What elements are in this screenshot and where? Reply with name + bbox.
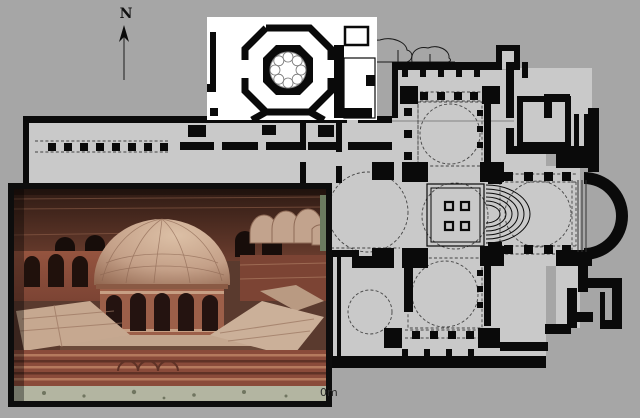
model-photo-image [14,189,326,401]
north-label: N [116,6,136,22]
scale-label: 0m [320,386,338,399]
north-arrow [119,25,129,80]
octagon-inset [207,17,377,120]
model-photo [8,183,332,407]
